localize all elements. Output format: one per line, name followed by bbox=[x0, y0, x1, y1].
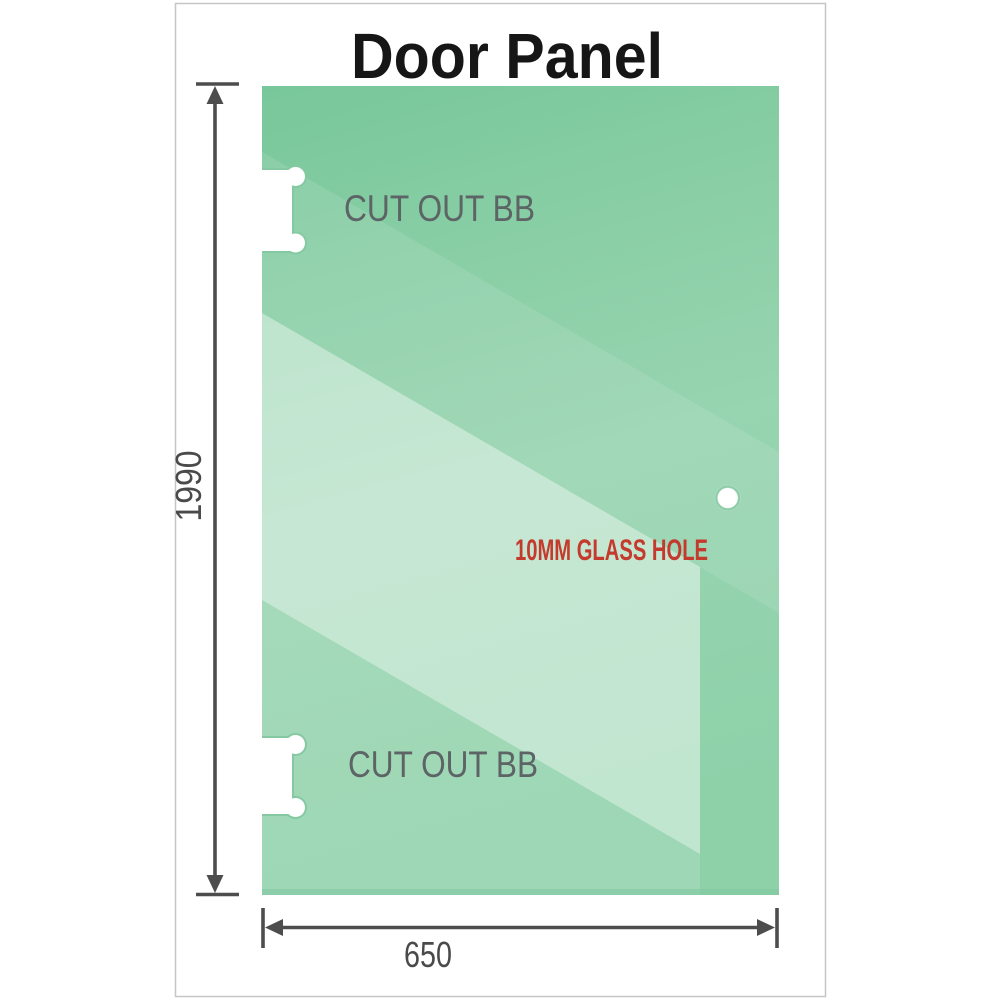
page-title: Door Panel bbox=[351, 20, 663, 92]
cutout-top-label: CUT OUT BB bbox=[344, 188, 535, 229]
door-panel-drawing: Door Panel bbox=[0, 0, 1000, 1000]
door-panel-diagram: Door Panel bbox=[0, 0, 1000, 1000]
glass-bottom-edge bbox=[262, 889, 779, 895]
glass-hole-opening bbox=[718, 488, 738, 508]
glass-hole-label: 10MM GLASS HOLE bbox=[515, 534, 708, 567]
cutout-bottom-label: CUT OUT BB bbox=[348, 744, 538, 785]
glass-hole bbox=[715, 485, 741, 511]
width-dimension-label: 650 bbox=[404, 934, 452, 975]
glass-panel: CUT OUT BB CUT OUT BB 10MM GLASS HOLE bbox=[254, 86, 779, 895]
height-dimension-label: 1990 bbox=[168, 451, 209, 522]
